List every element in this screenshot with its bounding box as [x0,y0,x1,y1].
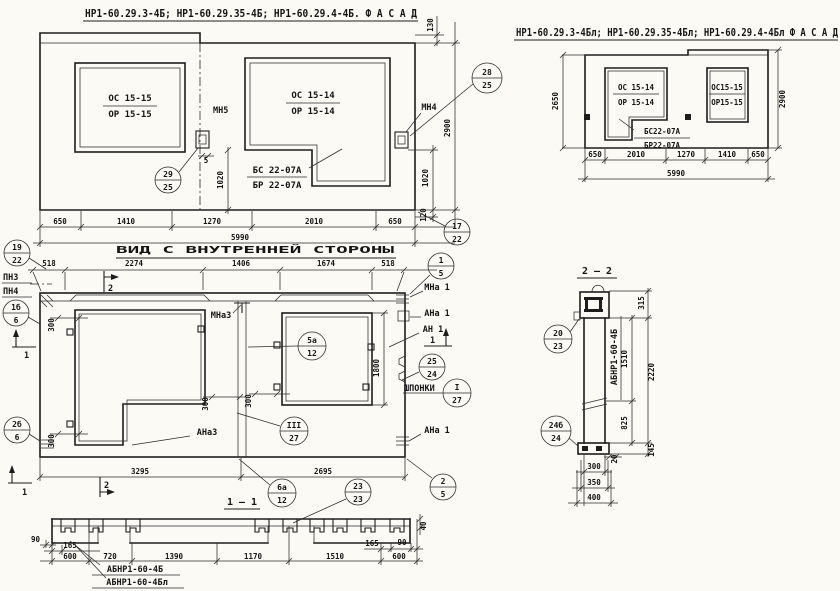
dim-label: 165 [365,539,379,548]
dim-label: 2274 [125,259,144,268]
callout-2b-6: 2б 6 [4,417,40,443]
corner-clip-detail [396,437,409,445]
svg-text:20: 20 [553,329,563,338]
window-balcony-frame-inner [79,314,201,441]
svg-text:27: 27 [289,434,299,443]
svg-text:25: 25 [163,183,173,192]
item-mark: АБНР1-60-4Б [610,329,620,385]
window-frame [282,313,372,405]
panel-outline [40,33,415,210]
svg-text:2б: 2б [12,419,22,429]
item-mark: АБНР1-60-4Б [107,565,163,575]
svg-text:2: 2 [104,481,109,491]
svg-text:22: 22 [452,235,462,244]
dim-label: 518 [42,259,56,268]
svg-text:2: 2 [441,477,446,486]
window-frame-inner [286,317,368,401]
dimension-ticks [30,267,408,480]
dim-label: 300 [587,462,601,471]
edge-clip-detail [398,311,409,321]
svg-text:25: 25 [482,81,492,90]
dim-label: 300 [201,397,210,411]
callout-28-25: 28 25 [410,63,502,136]
section-bottom-contour [52,519,410,543]
dim-label: 350 [587,478,601,487]
dim-label: 1410 [117,217,136,226]
svg-text:5: 5 [441,490,446,499]
leader-line [233,305,241,313]
window-frame [75,63,185,152]
dim-label: 165 [63,541,77,550]
dim-label: 90 [31,535,41,544]
dimension-ticks [574,288,651,506]
dim-label: 1674 [317,259,336,268]
callout-20-23: 20 23 [544,319,579,353]
callout-I-27: I 27 [443,379,471,407]
dim-label: 1020 [216,170,225,189]
item-mark: АБНР1-60-4Бл [106,578,167,588]
dim-label: 650 [388,217,402,226]
dim-label: 600 [392,552,406,561]
window-mark: ОС 15-15 [108,94,151,104]
window-frame-inner [710,71,745,119]
anchor-mark [685,114,691,120]
window-mark: ОС 15-14 [291,91,335,101]
callout-29-25: 29 25 [155,148,198,193]
cap-insert [585,300,588,309]
svg-text:29: 29 [163,170,173,179]
pier-anchor [234,303,250,313]
svg-text:27: 27 [452,396,462,405]
detail-label: ШПОНКИ [404,384,435,394]
anchor-label: МН5 [213,106,228,116]
svg-text:28: 28 [482,68,492,77]
dim-label: 2220 [647,362,656,381]
callout-23-23: 23 23 [293,479,371,523]
svg-text:1: 1 [439,256,444,265]
axis-label: ПН3 [3,273,18,283]
dim-label: 518 [381,259,395,268]
svg-text:5а: 5а [307,336,317,345]
anchor-detail [395,132,408,148]
dim-label: 1270 [203,217,222,226]
svg-text:2: 2 [108,284,113,294]
axis-label: ПН4 [3,287,18,297]
svg-text:III: III [287,421,302,430]
callout-1b-6: 1б 6 [3,300,40,326]
section-1-1: 1 – 1 90 165 600 720 1390 1170 1510 165 … [31,479,428,588]
svg-text:I: I [455,383,460,392]
detail-label: АН 1 [423,325,443,335]
facade-right-title: НР1-60.29.3-4Бл; НР1-60.29.35-4Бл; НР1-6… [516,27,839,39]
dim-label: 5990 [231,233,250,242]
svg-text:6а: 6а [277,483,287,492]
break-lines [582,398,607,410]
svg-text:1: 1 [22,488,27,498]
drip-detail [574,312,580,320]
rib-channels [61,519,404,532]
dim-label: 1270 [677,150,696,159]
panel-body-section [584,318,605,443]
callout-25-24: 25 24 [402,354,445,380]
leader-line [409,434,421,441]
facade-left-title: НР1-60.29.3-4Б; НР1-60.29.35-4Б; НР1-60.… [85,8,418,20]
dimension-lines [562,50,782,182]
foot-insert [596,446,602,451]
section-title: 1 – 1 [227,497,257,508]
svg-text:24б: 24б [549,420,564,430]
dim-label: 20 [610,454,619,464]
dim-label: 90 [397,538,407,547]
dim-label: 2650 [551,91,560,110]
dim-label: 2695 [314,467,332,476]
dim-label: 300 [47,318,56,332]
leader-line [309,149,342,168]
section-mark-2-bottom: 2 [100,477,115,497]
dim-label: 650 [588,150,602,159]
detail-label: АНа 1 [424,426,450,436]
drawing-canvas: НР1-60.29.3-4Б; НР1-60.29.35-4Б; НР1-60.… [0,0,840,591]
dim-label: 300 [244,394,253,408]
callout-5a-12: 5а 12 [248,332,326,360]
svg-text:23: 23 [353,495,363,504]
anchor-mark [368,344,374,350]
foot-insert [582,446,588,451]
lifting-loop [592,285,604,292]
dim-label: 130 [426,18,435,32]
dim-label: 3295 [131,467,149,476]
anchor-mark [274,342,280,348]
coping-cap [580,292,609,318]
dim-label: 1390 [165,552,184,561]
svg-text:22: 22 [12,256,22,265]
anchor-mark [584,114,590,120]
section-mark-1-left: 1 [12,329,36,361]
dim-label: 145 [647,443,656,457]
section-mark-1-left-low: 1 [8,465,32,498]
svg-text:5: 5 [439,269,444,278]
dim-label: 1800 [372,358,381,377]
window-frame-inner [80,68,180,147]
svg-text:1: 1 [24,351,29,361]
dim-label: 650 [53,217,67,226]
door-mark: БС 22-07А [253,166,302,176]
facade-right-view: НР1-60.29.3-4Бл; НР1-60.29.35-4Бл; НР1-6… [514,27,839,182]
door-mark: БР22-07А [644,141,681,150]
anchor-mark [274,384,280,390]
dim-label: 2900 [443,118,452,137]
drawing-sheet: НР1-60.29.3-4Б; НР1-60.29.35-4Б; НР1-60.… [0,0,840,591]
window-mark: ОР15-15 [711,98,743,107]
dim-label: 650 [751,150,765,159]
section-mark-2-top: 2 [104,271,119,294]
callout-24b-24: 24б 24 [541,416,578,446]
corner-clip-detail [396,295,409,303]
dim-label: 315 [637,296,646,310]
leader-line [132,436,190,445]
detail-label: МНа 1 [424,283,450,293]
dim-label: 1020 [421,168,430,187]
dim-label: 5 [204,156,209,165]
dim-label: 5990 [667,169,686,178]
dim-label: 1510 [326,552,345,561]
lintel-recess-lines [70,295,374,301]
dim-label: 720 [103,552,117,561]
svg-text:25: 25 [427,357,437,366]
shear-key-notches [399,356,405,382]
dim-label: 600 [63,552,77,561]
window-mark: ОС 15-14 [618,83,655,92]
svg-text:1: 1 [430,336,435,346]
inner-side-view: ВИД С ВНУТРЕННЕЙ СТОРОНЫ ПН3 ПН4 [2,240,471,507]
callout-2-5: 2 5 [407,459,456,500]
cap-insert [584,309,603,312]
facade-left-view: НР1-60.29.3-4Б; НР1-60.29.35-4Б; НР1-60.… [33,8,502,247]
dim-label: 1510 [620,349,629,368]
callout-III-27: III 27 [237,413,308,445]
detail-label: АНа3 [197,428,217,438]
cap-insert [584,297,603,300]
section-2-2: 2 – 2 АБНР1-60-4Б 315 1510 2220 825 145 … [541,266,656,507]
leader-line [389,333,419,347]
window-mark: ОР 15-15 [108,110,151,120]
svg-text:24: 24 [551,434,561,443]
window-balcony-frame [75,310,205,445]
window-mark: ОР 15-14 [291,107,335,117]
inner-view-title: ВИД С ВНУТРЕННЕЙ СТОРОНЫ [116,243,394,256]
anchor-detail [196,131,209,148]
anchor-label: МН4 [421,103,436,113]
dim-label: 2900 [778,89,787,108]
svg-text:1б: 1б [11,302,21,312]
anchor-mark [67,421,73,427]
svg-text:19: 19 [12,243,22,252]
dim-label: 400 [587,493,601,502]
dim-label: 825 [620,416,629,430]
window-mark: ОС15-15 [711,83,743,92]
window-frame [707,68,748,122]
dim-label: 1410 [718,150,737,159]
anchor-mark [67,329,73,335]
cap-insert [599,300,602,309]
svg-text:23: 23 [353,482,363,491]
door-mark: БС22-07А [644,127,681,136]
section-title: 2 – 2 [582,266,612,277]
svg-text:24: 24 [427,370,437,379]
detail-label: МНа3 [211,311,231,321]
svg-text:17: 17 [452,222,462,231]
dim-label: 2010 [305,217,324,226]
svg-text:23: 23 [553,342,563,351]
svg-text:12: 12 [277,496,287,505]
dim-label: 1170 [244,552,263,561]
dimension-lines [568,288,652,507]
svg-text:12: 12 [307,349,317,358]
dim-label: 2010 [627,150,646,159]
svg-text:6: 6 [15,433,20,442]
pier-groove-lines [238,301,246,457]
door-mark: БР 22-07А [253,181,302,191]
anchor-detail-inner [398,136,405,144]
detail-label: АНа 1 [424,309,450,319]
svg-text:6: 6 [14,316,19,325]
dim-label: 1406 [232,259,251,268]
window-mark: ОР 15-14 [618,98,655,107]
dim-label: 300 [47,434,56,448]
dim-label: 40 [419,521,428,531]
